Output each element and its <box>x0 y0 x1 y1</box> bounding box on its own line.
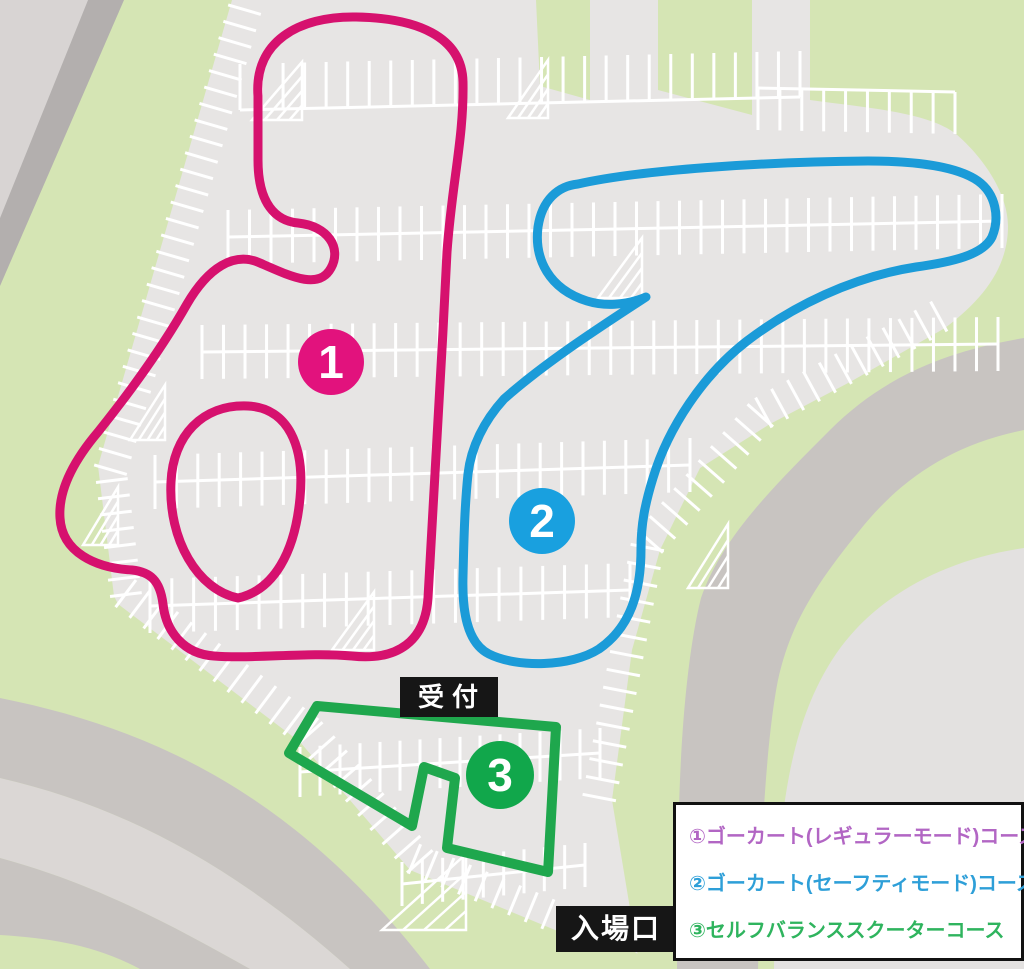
legend-item-1: ①ゴーカート(レギュラーモード)コース <box>689 820 1021 849</box>
entrance-label: 入場口 <box>556 906 674 952</box>
marker-3-number: 3 <box>487 749 513 801</box>
marker-3: 3 <box>466 741 534 809</box>
course-legend: ①ゴーカート(レギュラーモード)コース ②ゴーカート(セーフティモード)コース … <box>673 802 1024 961</box>
reception-label: 受付 <box>400 677 498 717</box>
marker-2: 2 <box>509 488 575 554</box>
marker-1: 1 <box>298 329 364 395</box>
legend-item-2: ②ゴーカート(セーフティモード)コース <box>689 867 1021 896</box>
legend-item-3: ③セルフバランススクーターコース <box>689 914 1021 943</box>
karting-course-map: 1 2 3 受付 入場口 ①ゴーカート(レギュラーモード)コース ②ゴーカート(… <box>0 0 1024 969</box>
marker-2-number: 2 <box>529 495 555 547</box>
marker-1-number: 1 <box>318 336 344 388</box>
